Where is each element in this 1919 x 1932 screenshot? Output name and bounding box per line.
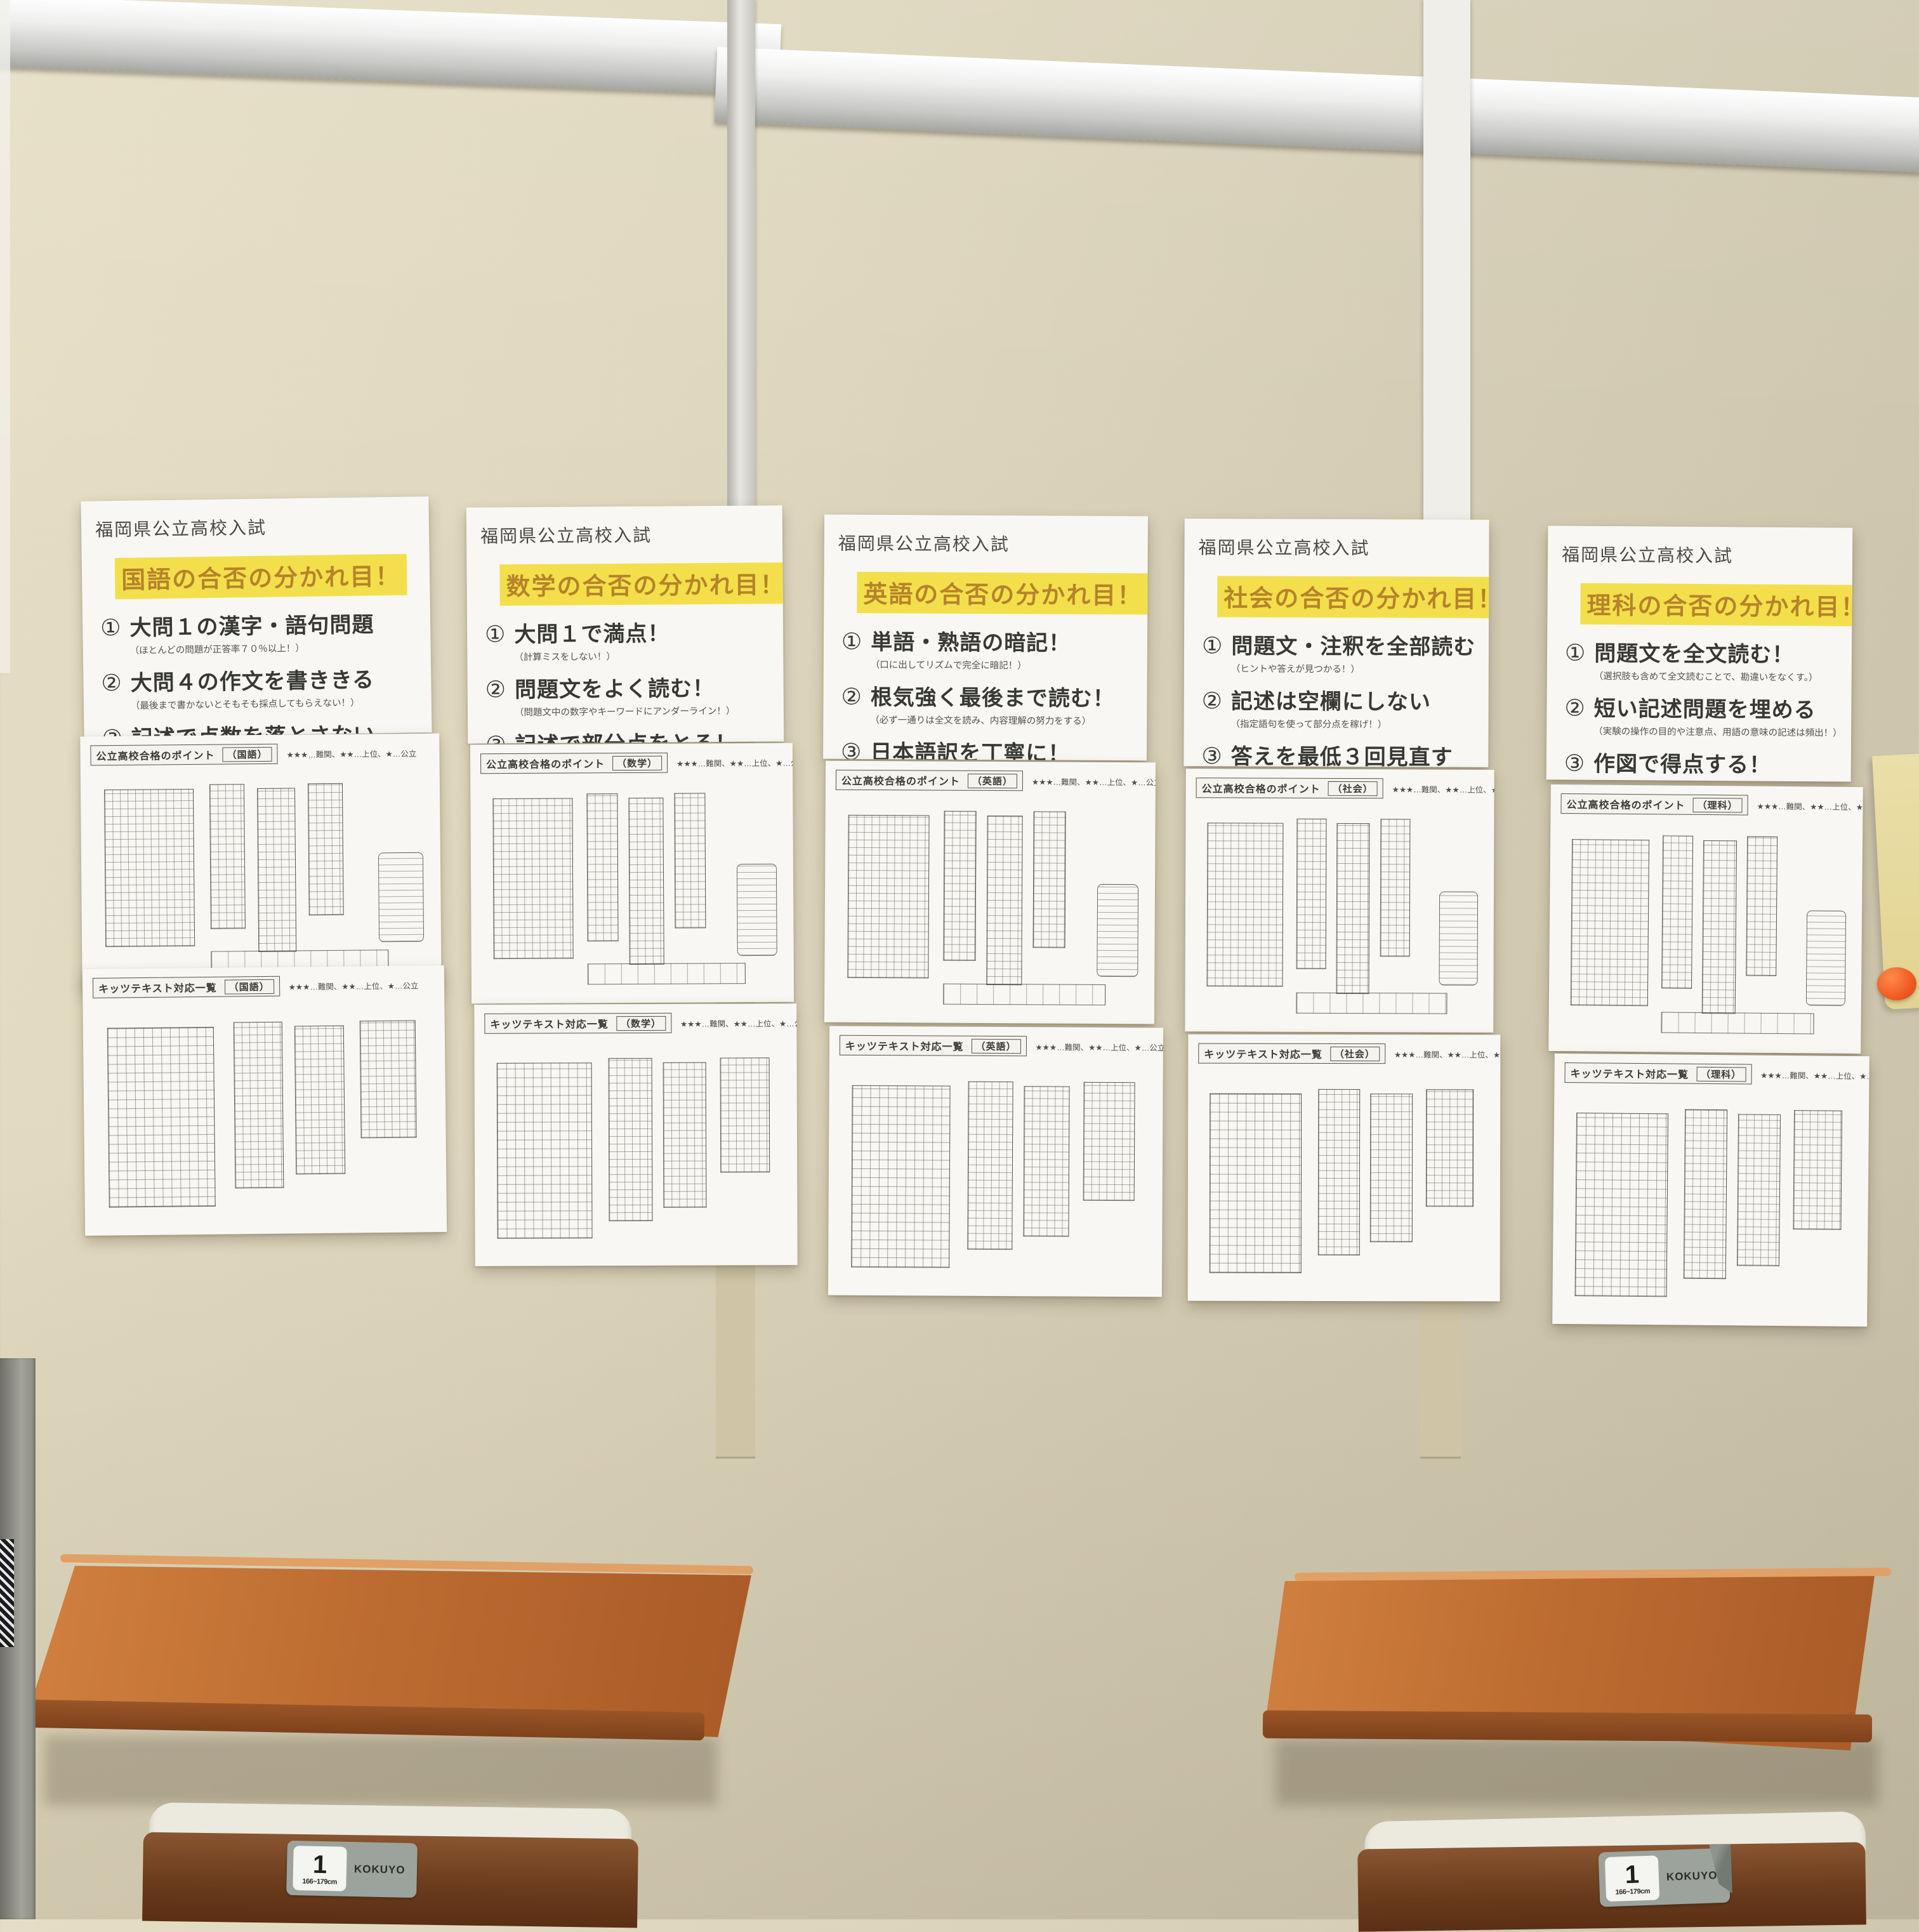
item-text: 記述で部分点をとる！ — [515, 726, 737, 744]
sheet-subject: （数学） — [612, 755, 662, 770]
chair-size-label: 1 166~179cm KOKUYO — [286, 1841, 418, 1898]
diagram-box — [851, 1085, 951, 1268]
sheet-title-box: キッツテキスト対応一覧（国語） — [93, 976, 280, 998]
sheet-header: 公立高校合格のポイント（国語） ★★★…難関、★★…上位、★…公立 — [90, 743, 429, 766]
point-sheet-japanese: 公立高校合格のポイント（国語） ★★★…難関、★★…上位、★…公立 — [80, 734, 441, 991]
poster-item: ③作図で得点する！ — [1564, 746, 1835, 779]
item-note: （必ず一通りは全文を読み、内容理解の努力をする） — [870, 713, 1133, 727]
sheet-subject: （理科） — [1692, 797, 1742, 812]
sheet-title-box: キッツテキスト対応一覧（理科） — [1564, 1062, 1751, 1085]
handwritten-diagram — [91, 768, 432, 982]
sheet-header: キッツテキスト対応一覧（数学） ★★★…難関、★★…上位、★…公立 — [484, 1012, 786, 1034]
kit-sheet-japanese: キッツテキスト対応一覧（国語） ★★★…難関、★★…上位、★…公立 — [82, 965, 447, 1236]
item-text: 大問１で満点！ — [514, 616, 669, 649]
sheet-header: 公立高校合格のポイント（英語） ★★★…難関、★★…上位、★…公立 — [836, 770, 1145, 792]
sheet-title: 公立高校合格のポイント — [841, 772, 960, 788]
sheet-title-box: 公立高校合格のポイント（理科） — [1560, 793, 1748, 816]
diagram-box — [1370, 1094, 1413, 1242]
top-metal-rail-right — [715, 47, 1919, 175]
diagram-box — [257, 788, 297, 951]
sheet-legend: ★★★…難関、★★…上位、★…公立 — [1394, 1048, 1501, 1060]
sheet-header: キッツテキスト対応一覧（社会） ★★★…難関、★★…上位、★…公立 — [1198, 1043, 1490, 1064]
sheet-title-box: 公立高校合格のポイント（英語） — [836, 770, 1023, 791]
poster-item: ②短い記述問題を埋める — [1564, 691, 1835, 724]
diagram-note-box — [378, 852, 425, 943]
diagram-box — [1661, 835, 1693, 989]
chair-brand-text: KOKUYO — [1666, 1869, 1718, 1884]
poster-item: ③記述で部分点をとる！ — [485, 725, 767, 743]
sheet-legend: ★★★…難関、★★…上位、★…公立 — [289, 979, 419, 992]
item-number: ② — [485, 676, 506, 703]
sheet-header: キッツテキスト対応一覧（理科） ★★★…難関、★★…上位、★…公立 — [1564, 1062, 1859, 1085]
sheet-title: 公立高校合格のポイント — [96, 747, 214, 764]
poster-item: ①大問１で満点！ — [485, 615, 767, 648]
sheet-title: 公立高校合格のポイント — [486, 755, 605, 771]
item-text: 根気強く最後まで読む！ — [871, 680, 1115, 712]
item-text: 日本語訳を丁寧に！ — [870, 735, 1070, 760]
handwritten-diagram — [838, 1061, 1153, 1288]
handwritten-diagram — [1198, 1069, 1491, 1293]
item-note: （実験の操作の目的や注意点、用語の意味の記述は頻出！） — [1593, 724, 1837, 739]
sheet-title: キッツテキスト対応一覧 — [1571, 1065, 1689, 1082]
diagram-box — [1737, 1115, 1781, 1266]
chair-size-number: 1 — [1625, 1862, 1640, 1888]
item-note: （最後まで書かないとそもそも採点してもらえない！） — [131, 694, 418, 711]
desk-right-front-edge — [1263, 1710, 1872, 1743]
diagram-note-box — [737, 864, 778, 956]
point-sheet-social-studies: 公立高校合格のポイント（社会） ★★★…難関、★★…上位、★…公立 — [1185, 769, 1494, 1033]
item-note: （問題文中の数字やキーワードにアンダーライン！） — [515, 703, 770, 718]
handwritten-diagram — [480, 777, 784, 995]
poster-item: ②記述は空欄にしない — [1202, 684, 1472, 715]
sheet-legend: ★★★…難関、★★…上位、★…公立 — [1760, 1068, 1870, 1082]
item-text: 大問４の作文を書ききる — [130, 662, 374, 696]
diagram-box — [1317, 1089, 1360, 1256]
sheet-title: キッツテキスト対応一覧 — [845, 1038, 964, 1054]
diagram-box — [492, 798, 573, 959]
item-text: 単語・熟語の暗記！ — [871, 625, 1071, 657]
item-text: 大問１の漢字・語句問題 — [129, 607, 374, 641]
sheet-header: 公立高校合格のポイント（理科） ★★★…難関、★★…上位、★…公立 — [1560, 793, 1852, 816]
item-note: （選択肢も含めて全文読むことで、勘違いをなくす。） — [1594, 669, 1838, 684]
sheet-title-box: キッツテキスト対応一覧（数学） — [484, 1013, 671, 1034]
poster-science: 福岡県公立高校入試 理科の合否の分かれ目！ ①問題文を全文読む！ （選択肢も含め… — [1546, 526, 1853, 781]
sheet-legend: ★★★…難関、★★…上位、★…公立 — [1032, 775, 1156, 788]
diagram-box — [1033, 811, 1066, 948]
orange-magnet — [1877, 967, 1916, 1000]
poster-heading: 福岡県公立高校入試 — [1562, 541, 1838, 568]
item-number: ③ — [1564, 750, 1585, 777]
handwritten-diagram — [1559, 819, 1852, 1045]
diagram-box — [943, 983, 1105, 1005]
poster-item: ①問題文を全文読む！ — [1565, 636, 1835, 669]
poster-english: 福岡県公立高校入試 英語の合否の分かれ目！ ①単語・熟語の暗記！ （口に出してリ… — [823, 515, 1148, 761]
chair-size-box: 1 166~179cm — [1605, 1855, 1659, 1902]
item-number: ③ — [485, 731, 506, 743]
striped-object — [0, 1539, 14, 1647]
item-text: 記述は空欄にしない — [1231, 684, 1431, 715]
item-text: 答えを最低３回見直す — [1231, 739, 1453, 767]
poster-item: ②大問４の作文を書ききる — [101, 662, 415, 698]
sheet-title-box: 公立高校合格のポイント（数学） — [480, 753, 668, 774]
poster-item: ①単語・熟語の暗記！ — [841, 625, 1131, 657]
handwritten-diagram — [834, 795, 1145, 1016]
kit-sheet-math: キッツテキスト対応一覧（数学） ★★★…難関、★★…上位、★…公立 — [474, 1003, 797, 1266]
diagram-box — [1083, 1082, 1135, 1201]
diagram-box — [1661, 1012, 1814, 1035]
item-number: ① — [1202, 632, 1222, 659]
sheet-legend: ★★★…難関、★★…上位、★…公立 — [286, 746, 416, 760]
diagram-box — [1336, 823, 1370, 994]
chair-size-box: 1 166~179cm — [293, 1846, 346, 1891]
diagram-box — [294, 1025, 345, 1174]
item-note: （ほとんどの問題が正答率７０％以上！） — [130, 639, 417, 656]
item-text: 作図で得点する！ — [1593, 746, 1771, 779]
handwritten-diagram — [93, 1000, 437, 1227]
diagram-box — [1571, 839, 1649, 1007]
item-number: ① — [100, 614, 121, 641]
sheet-header: 公立高校合格のポイント（社会） ★★★…難関、★★…上位、★…公立 — [1196, 777, 1484, 799]
diagram-box — [1574, 1113, 1668, 1297]
diagram-box — [1296, 819, 1327, 969]
diagram-box — [308, 783, 344, 915]
item-note: （ヒントや答えが見つかる！） — [1231, 661, 1475, 675]
diagram-note-box — [1097, 883, 1138, 977]
diagram-box — [1746, 836, 1778, 976]
handwritten-diagram — [484, 1038, 787, 1257]
diagram-box — [1210, 1093, 1302, 1273]
diagram-box — [587, 963, 746, 984]
sheet-legend: ★★★…難関、★★…上位、★…公立 — [1392, 783, 1494, 795]
poster-subject-highlight: 理科の合否の分かれ目！ — [1580, 583, 1852, 626]
sheet-subject: （社会） — [1330, 1046, 1380, 1061]
item-text: 問題文・注釈を全部読む — [1231, 628, 1475, 660]
kit-sheet-science: キッツテキスト対応一覧（理科） ★★★…難関、★★…上位、★…公立 — [1552, 1054, 1870, 1327]
diagram-box — [209, 784, 246, 929]
diagram-box — [943, 811, 976, 961]
desk-shadow — [44, 1736, 717, 1806]
handwritten-diagram — [1562, 1088, 1859, 1318]
diagram-box — [1684, 1109, 1727, 1279]
item-number: ② — [1202, 687, 1222, 714]
sheet-subject: （英語） — [968, 773, 1017, 788]
sheet-title: 公立高校合格のポイント — [1202, 780, 1321, 796]
sheet-title-box: 公立高校合格のポイント（国語） — [90, 744, 277, 766]
diagram-box — [1207, 823, 1284, 986]
diagram-box — [359, 1020, 416, 1138]
sheet-title: 公立高校合格のポイント — [1566, 796, 1685, 812]
diagram-box — [967, 1082, 1013, 1250]
poster-item: ③答えを最低３回見直す — [1201, 739, 1472, 767]
point-sheet-english: 公立高校合格のポイント（英語） ★★★…難関、★★…上位、★…公立 — [824, 761, 1156, 1024]
sheet-subject: （国語） — [225, 979, 274, 994]
diagram-box — [233, 1021, 284, 1188]
diagram-note-box — [1439, 892, 1478, 986]
item-number: ② — [1564, 695, 1585, 722]
chair-size-number: 1 — [313, 1851, 327, 1877]
item-text: 問題文を全文読む！ — [1594, 636, 1794, 668]
sheet-title: キッツテキスト対応一覧 — [1204, 1046, 1322, 1061]
chair-height-range: 166~179cm — [1615, 1888, 1650, 1896]
diagram-box — [1426, 1089, 1474, 1207]
top-metal-rail-left — [0, 0, 781, 95]
diagram-box — [609, 1058, 653, 1221]
poster-item: ②根気強く最後まで読む！ — [841, 680, 1130, 712]
item-number: ① — [841, 628, 862, 655]
desk-shadow — [1276, 1739, 1878, 1806]
chair-height-range: 166~179cm — [302, 1878, 337, 1886]
item-number: ③ — [102, 725, 122, 738]
item-note: （指定語句を使って部分点を稼げ！） — [1231, 717, 1475, 731]
item-number: ① — [485, 621, 506, 647]
sheet-header: キッツテキスト対応一覧（英語） ★★★…難関、★★…上位、★…公立 — [840, 1035, 1153, 1057]
item-note: （計算ミスをしない！） — [514, 648, 769, 663]
sheet-legend: ★★★…難関、★★…上位、★…公立 — [1757, 799, 1863, 812]
diagram-box — [107, 1027, 216, 1208]
poster-japanese: 福岡県公立高校入試 国語の合否の分かれ目！ ①大問１の漢字・語句問題 （ほとんど… — [81, 496, 432, 738]
diagram-box — [1024, 1086, 1069, 1236]
item-number: ① — [1565, 640, 1586, 666]
poster-item: ①大問１の漢字・語句問題 — [100, 607, 414, 642]
sheet-title-box: キッツテキスト対応一覧（社会） — [1198, 1043, 1385, 1064]
poster-item: ①問題文・注釈を全部読む — [1202, 628, 1472, 660]
point-sheet-science: 公立高校合格のポイント（理科） ★★★…難関、★★…上位、★…公立 — [1548, 784, 1863, 1054]
item-text: 短い記述問題を埋める — [1594, 691, 1816, 724]
poster-subject-highlight: 社会の合否の分かれ目！ — [1217, 576, 1489, 618]
diagram-box — [1380, 819, 1410, 956]
item-note: （口に出してリズムで完全に暗記！） — [871, 658, 1133, 672]
chair-brand-text: KOKUYO — [354, 1863, 406, 1877]
diagram-box — [104, 789, 195, 947]
diagram-box — [1793, 1110, 1842, 1230]
poster-heading: 福岡県公立高校入試 — [1198, 534, 1475, 560]
item-note: （実は簡単な問題が多い！ここで正解できるかがポイント！） — [1593, 779, 1837, 782]
left-wall-edge — [0, 0, 10, 673]
sheet-subject: （理科） — [1696, 1066, 1746, 1082]
sheet-legend: ★★★…難関、★★…上位、★…公立 — [1035, 1040, 1163, 1053]
poster-subject-highlight: 国語の合否の分かれ目！ — [115, 554, 407, 599]
poster-subject-highlight: 英語の合否の分かれ目！ — [857, 572, 1148, 614]
diagram-box — [986, 816, 1022, 985]
diagram-box — [497, 1062, 593, 1239]
item-number: ② — [101, 670, 122, 696]
handwritten-diagram — [1195, 803, 1484, 1024]
diagram-box — [663, 1062, 706, 1207]
kit-sheet-english: キッツテキスト対応一覧（英語） ★★★…難関、★★…上位、★…公立 — [828, 1026, 1163, 1297]
sheet-subject: （英語） — [971, 1038, 1020, 1053]
poster-subject-highlight: 数学の合否の分かれ目！ — [499, 562, 784, 605]
sheet-title: キッツテキスト対応一覧 — [490, 1016, 609, 1031]
poster-heading: 福岡県公立高校入試 — [95, 512, 416, 541]
item-number: ③ — [1201, 743, 1222, 767]
sheet-subject: （社会） — [1328, 781, 1378, 795]
classroom-wall-photo: { "posters": [ { "title": "福岡県公立高校入試", "… — [0, 0, 1919, 1919]
diagram-note-box — [1806, 910, 1846, 1005]
diagram-box — [1296, 992, 1447, 1014]
poster-item: ②問題文をよく読む！ — [485, 670, 767, 703]
poster-heading: 福岡県公立高校入試 — [480, 520, 768, 548]
item-number: ③ — [841, 739, 862, 761]
diagram-box — [1702, 840, 1737, 1014]
sheet-title: キッツテキスト対応一覧 — [98, 979, 217, 996]
sheet-subject: （国語） — [222, 746, 272, 762]
diagram-box — [674, 793, 706, 928]
sheet-title-box: 公立高校合格のポイント（社会） — [1196, 777, 1383, 798]
chair-size-label: 1 166~179cm KOKUYO — [1599, 1848, 1731, 1907]
item-text: 問題文をよく読む！ — [515, 671, 715, 703]
diagram-box — [847, 815, 930, 978]
sheet-legend: ★★★…難関、★★…上位、★…公立 — [676, 756, 794, 769]
sheet-header: キッツテキスト対応一覧（国語） ★★★…難関、★★…上位、★…公立 — [93, 974, 434, 998]
sheet-subject: （数学） — [616, 1016, 666, 1030]
poster-math: 福岡県公立高校入試 数学の合否の分かれ目！ ①大問１で満点！ （計算ミスをしない… — [466, 505, 784, 743]
poster-social-studies: 福岡県公立高校入試 社会の合否の分かれ目！ ①問題文・注釈を全部読む （ヒントや… — [1184, 519, 1489, 767]
point-sheet-math: 公立高校合格のポイント（数学） ★★★…難関、★★…上位、★…公立 — [470, 743, 794, 1004]
diagram-box — [720, 1057, 770, 1172]
item-number: ② — [841, 684, 862, 710]
poster-item: ③日本語訳を丁寧に！ — [841, 735, 1130, 761]
poster-heading: 福岡県公立高校入試 — [838, 530, 1134, 557]
sheet-title-box: キッツテキスト対応一覧（英語） — [840, 1035, 1027, 1057]
diagram-box — [629, 797, 664, 965]
kit-sheet-social-studies: キッツテキスト対応一覧（社会） ★★★…難関、★★…上位、★…公立 — [1188, 1035, 1501, 1302]
diagram-box — [586, 793, 619, 941]
sheet-legend: ★★★…難関、★★…上位、★…公立 — [680, 1017, 798, 1029]
sheet-header: 公立高校合格のポイント（数学） ★★★…難関、★★…上位、★…公立 — [480, 752, 782, 774]
